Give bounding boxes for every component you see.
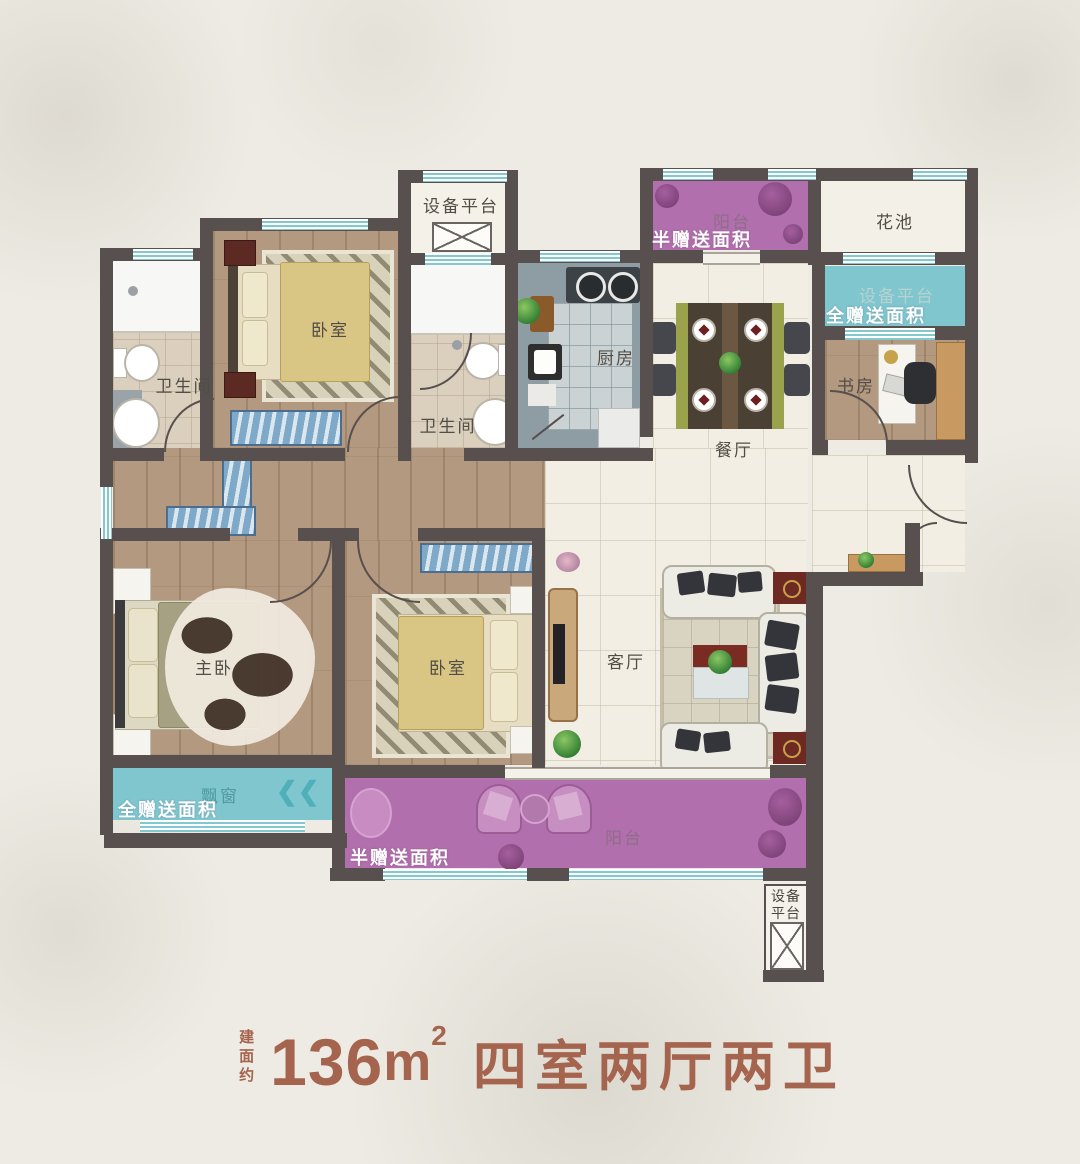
dining-chair xyxy=(650,322,676,354)
sliding-door xyxy=(505,767,770,780)
wall xyxy=(808,181,821,252)
room-label-bath-mid: 卫生间 xyxy=(408,412,488,437)
sofa-cushion xyxy=(764,684,799,714)
wall xyxy=(418,528,545,541)
sofa-cushion xyxy=(703,731,731,754)
end-table-ring-icon xyxy=(783,580,801,598)
window xyxy=(843,253,935,264)
room-label-study: 书房 xyxy=(828,372,884,397)
sofa-cushion xyxy=(737,571,763,593)
window xyxy=(768,169,816,180)
balcony-plant xyxy=(783,224,803,244)
wall xyxy=(100,539,113,835)
bed-pillow xyxy=(242,272,268,318)
burner-icon xyxy=(576,272,606,302)
wall xyxy=(806,583,823,982)
kitchen-counter xyxy=(528,384,556,406)
bedroom-top-wardrobe xyxy=(230,410,342,446)
equip-symbol-icon xyxy=(770,922,804,970)
room-label-living: 客厅 xyxy=(594,648,658,673)
bonus-label-bay-window: 全赠送面积 xyxy=(118,796,218,822)
wall xyxy=(812,265,825,440)
window xyxy=(663,169,713,180)
hall-floor xyxy=(545,448,808,540)
plate xyxy=(692,388,716,412)
sofa-cushion xyxy=(707,573,737,598)
plan-title: 建面约 136 m 2 四室两厅两卫 xyxy=(0,1022,1080,1101)
plate xyxy=(692,318,716,342)
title-layout-name: 四室两厅两卫 xyxy=(473,1022,845,1101)
wall xyxy=(100,755,345,768)
bed-pillow xyxy=(490,620,518,670)
room-label-flower-bed: 花池 xyxy=(860,208,930,233)
window xyxy=(540,251,620,262)
equip-symbol-icon xyxy=(432,222,492,252)
bed-pillow xyxy=(128,608,158,662)
window xyxy=(133,249,193,260)
balcony-plant xyxy=(498,844,524,870)
bath-sink xyxy=(112,398,160,448)
wall xyxy=(345,765,505,778)
bonus-label-balcony-top: 半赠送面积 xyxy=(652,226,752,252)
study-cabinet xyxy=(936,342,966,440)
entry-plant xyxy=(858,552,874,568)
wall xyxy=(100,248,113,487)
room-label-equip-top: 设备平台 xyxy=(416,192,506,217)
wall xyxy=(965,181,978,463)
room-label-bath-left: 卫生间 xyxy=(144,372,224,397)
nightstand xyxy=(224,372,256,398)
title-prefix: 建面约 xyxy=(235,1029,256,1095)
title-area-value: 136 xyxy=(270,1024,383,1100)
floor-plant xyxy=(553,730,581,758)
wall xyxy=(505,170,518,448)
bedroom-mid-wardrobe xyxy=(420,543,534,573)
desk-gold-decor xyxy=(884,350,898,364)
balcony-plant xyxy=(655,184,679,208)
wall xyxy=(332,765,345,868)
window xyxy=(845,328,935,340)
entry-shoe-cabinet xyxy=(848,554,908,572)
sofa-cushion xyxy=(764,619,800,650)
dining-chair xyxy=(650,364,676,396)
kitchen-sink-basin xyxy=(534,350,556,374)
floor-plan-page: ❮❮ xyxy=(0,0,1080,1164)
wall xyxy=(104,833,347,848)
bed-pillow xyxy=(242,320,268,366)
plate xyxy=(744,318,768,342)
balcony-plant xyxy=(768,788,802,826)
room-label-balcony-bottom: 阳台 xyxy=(592,824,656,849)
sofa-cushion xyxy=(765,652,800,682)
table-plant xyxy=(708,650,732,674)
wall xyxy=(527,868,569,881)
window xyxy=(383,869,527,880)
bedroom-top-headboard xyxy=(228,264,238,378)
end-table-ring-icon xyxy=(783,740,801,758)
bath-mid-shower xyxy=(411,265,505,335)
sofa-cushion xyxy=(677,570,706,595)
window xyxy=(423,171,507,182)
window xyxy=(425,253,491,265)
room-label-master: 主卧 xyxy=(182,654,246,679)
bonus-label-equip-right: 全赠送面积 xyxy=(826,302,926,328)
balcony-basin xyxy=(350,788,392,838)
sofa-cushion xyxy=(675,728,702,752)
bath-left-shower xyxy=(113,261,200,333)
title-area-sup: 2 xyxy=(431,1020,447,1052)
wall xyxy=(345,528,359,541)
balcony-side-table xyxy=(520,794,550,824)
window xyxy=(569,869,763,880)
window xyxy=(913,169,967,180)
wall xyxy=(200,448,345,461)
tv-screen xyxy=(553,624,565,684)
wall xyxy=(332,541,345,768)
title-area-unit: m xyxy=(383,1031,431,1093)
nightstand xyxy=(224,240,256,266)
plate xyxy=(744,388,768,412)
dining-chair xyxy=(784,322,810,354)
room-label-bedroom-top: 卧室 xyxy=(300,316,360,341)
room-label-equip-bottom: 设备平台 xyxy=(768,888,804,922)
room-label-dining: 餐厅 xyxy=(704,436,764,461)
sliding-door xyxy=(703,252,760,265)
shower-head-icon xyxy=(128,286,138,296)
balcony-plant xyxy=(758,830,786,858)
room-label-kitchen: 厨房 xyxy=(586,344,646,369)
wall xyxy=(100,528,230,541)
master-headboard xyxy=(115,600,125,728)
dining-chair xyxy=(784,364,810,396)
fridge xyxy=(598,408,640,448)
flower-decor xyxy=(556,552,580,572)
wall xyxy=(806,572,923,586)
wall xyxy=(464,448,653,461)
bed-pillow xyxy=(128,664,158,718)
wall xyxy=(532,541,545,768)
wall xyxy=(298,528,345,541)
bed-pillow xyxy=(490,672,518,722)
burner-icon xyxy=(608,272,638,302)
room-label-bedroom-mid: 卧室 xyxy=(416,654,480,679)
window xyxy=(101,487,112,539)
study-chair xyxy=(904,362,936,404)
bonus-label-balcony-bottom: 半赠送面积 xyxy=(350,844,450,870)
bay-chevrons-icon: ❮❮ xyxy=(276,776,320,807)
dining-centerpiece xyxy=(719,352,741,374)
window xyxy=(262,219,368,230)
wall xyxy=(812,440,828,455)
